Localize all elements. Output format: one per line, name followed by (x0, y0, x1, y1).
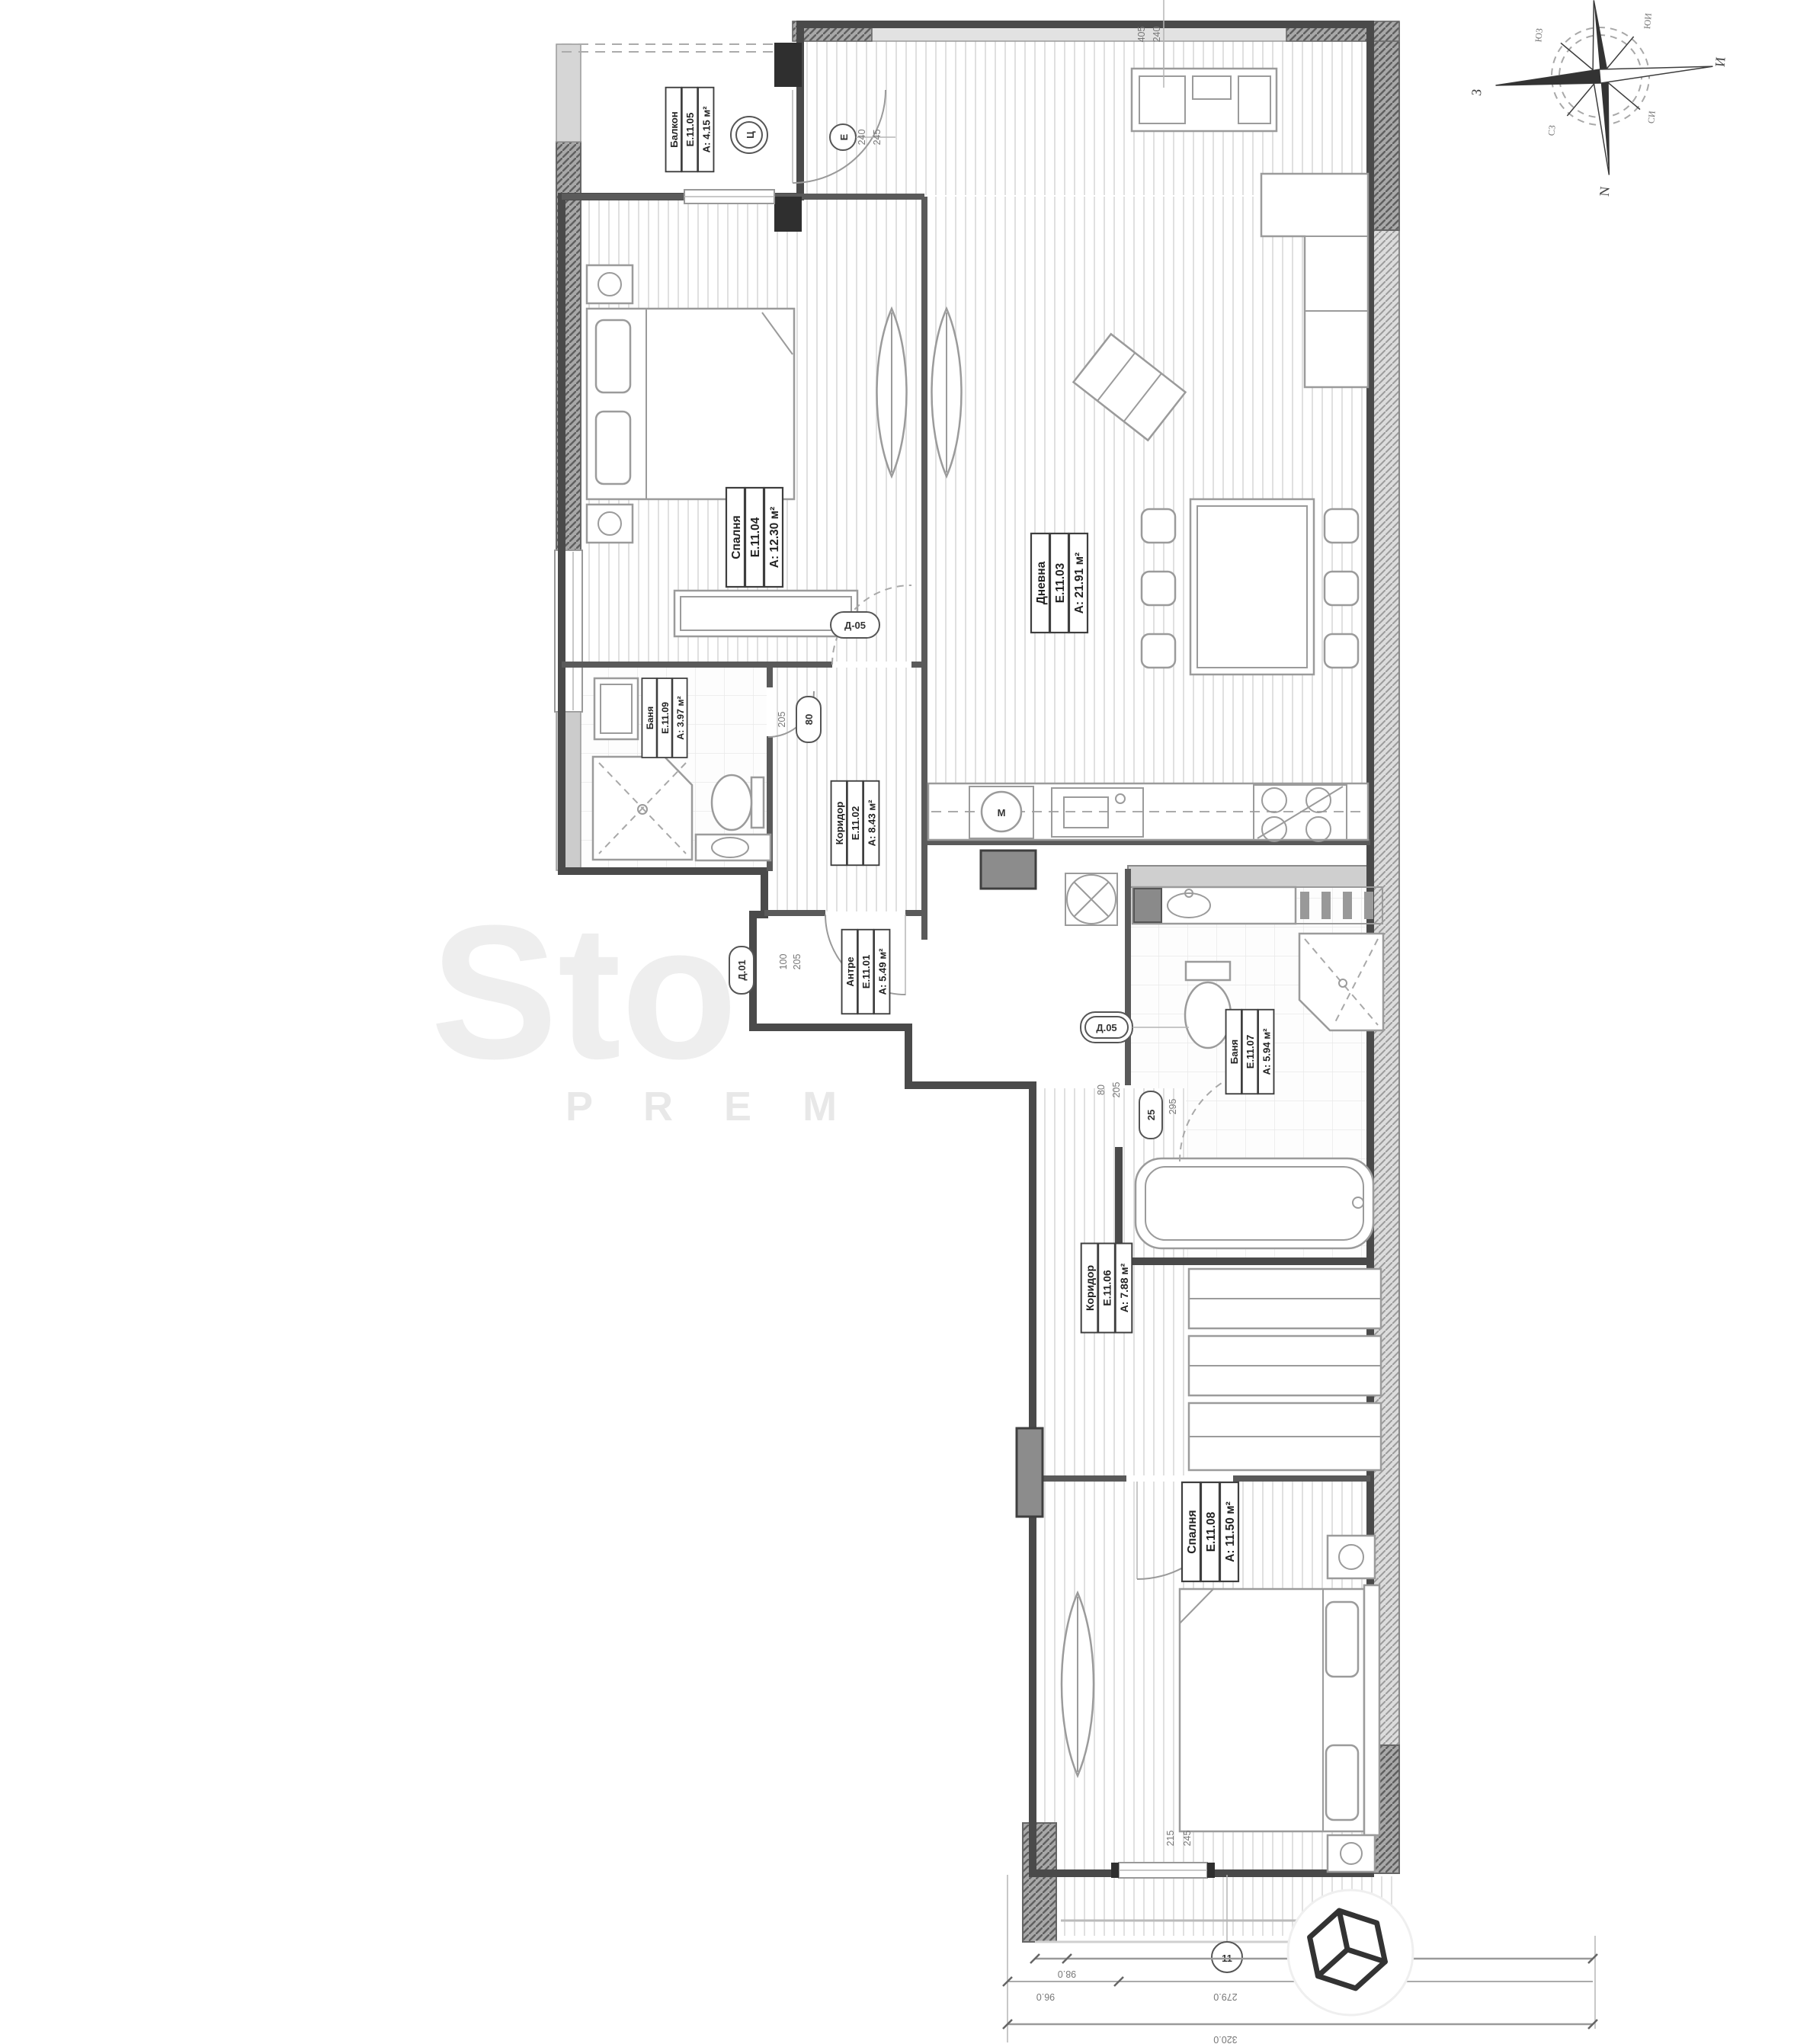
label-balcony-name: Балкон (668, 111, 680, 148)
french-door-jamb-l (1111, 1863, 1119, 1878)
dim-bath2-80: 80 (1096, 1084, 1107, 1095)
bottom-hatch-block (1023, 1823, 1056, 1942)
dim-bath2-205: 205 (1111, 1082, 1122, 1098)
bathtub (1136, 1158, 1373, 1248)
label-corridor2-area: А: 7.88 м² (1118, 1263, 1130, 1312)
dim-bd2-215: 215 (1165, 1831, 1176, 1847)
label-bath2: Баня Е.11.07 А: 5.94 м² (1226, 1010, 1274, 1094)
shaft-kitchen (981, 851, 1036, 889)
dim-entry-100: 100 (778, 954, 789, 970)
marker-small-door2-label: 25 (1145, 1110, 1157, 1120)
dim-bot-98: 98.0 (1058, 1969, 1076, 1979)
compass-needle-ew-fill (1495, 69, 1601, 92)
label-bedroom1-name: Спалня (730, 515, 743, 559)
chair-l2 (1142, 572, 1175, 605)
compass-rose: З И N ЮЗ ЮИ СЗ СИ (1461, 0, 1739, 209)
label-balcony-area: А: 4.15 м² (700, 106, 712, 153)
compass-west-label: З (1469, 88, 1485, 97)
floor-plan-drawing: Sto P R E M (0, 0, 1810, 2044)
label-corridor1-code: Е.11.02 (850, 806, 861, 841)
washing-machine-label: М (998, 807, 1006, 819)
french-door-jamb-r (1207, 1863, 1215, 1878)
bed1-pillow-1 (596, 320, 630, 392)
chair-r2 (1325, 572, 1358, 605)
compass-north-label: N (1597, 186, 1613, 197)
watermark: Sto P R E M (431, 886, 857, 1129)
label-bedroom2-code: Е.11.08 (1205, 1511, 1218, 1552)
dim-bot-320: 320.0 (1213, 2034, 1237, 2044)
dim-bot-96: 96.0 (1036, 1991, 1055, 2002)
label-living: Дневна Е.11.03 А: 21.91 м² (1031, 533, 1088, 633)
chair-l1 (1142, 509, 1175, 543)
toilet2-tank (1186, 962, 1230, 980)
marker-d05-hall2-label: Д.05 (1096, 1022, 1116, 1033)
nightstand1-bottom (587, 505, 633, 543)
dining-table (1190, 499, 1314, 674)
marker-circle2-label: Е (838, 133, 850, 140)
label-bath2-area: А: 5.94 м² (1261, 1028, 1272, 1075)
label-corridor1: Коридор Е.11.02 А: 8.43 м² (831, 781, 879, 866)
dim-bot-279: 279.0 (1213, 1991, 1237, 2002)
label-bedroom1-area: А: 12.30 м² (768, 507, 781, 568)
right-wall-dark-top (1372, 23, 1399, 230)
shelf-bar-3 (1343, 892, 1352, 919)
compass-east-label: И (1712, 56, 1728, 68)
watermark-big-text: Sto (431, 886, 738, 1098)
nightstand2-bottom (1328, 1835, 1375, 1872)
toilet2-bowl (1185, 982, 1231, 1048)
dim-bath2-295: 295 (1168, 1099, 1178, 1115)
label-bedroom2: Спалня Е.11.08 А: 11.50 м² (1182, 1482, 1238, 1581)
label-bedroom1: Спалня Е.11.04 А: 12.30 м² (726, 488, 783, 587)
bed2-pillow-1 (1326, 1602, 1358, 1677)
label-balcony: Балкон Е.11.05 А: 4.15 м² (666, 88, 714, 172)
nightstand2-top (1328, 1536, 1375, 1578)
label-bath1-code: Е.11.09 (660, 702, 671, 734)
watermark-small-text: P R E M (565, 1084, 857, 1129)
label-bedroom2-area: А: 11.50 м² (1224, 1501, 1237, 1562)
shelf-bar-1 (1300, 892, 1309, 919)
label-antre: Антре Е.11.01 А: 5.49 м² (842, 930, 890, 1014)
dim-entry-205: 205 (792, 954, 802, 970)
label-antre-name: Антре (844, 956, 856, 986)
marker-circle1-label: Ц (745, 131, 756, 139)
label-antre-area: А: 5.49 м² (876, 948, 888, 995)
bed1-pillow-2 (596, 412, 630, 484)
bed2-headboard (1364, 1585, 1379, 1835)
dim-top-405: 405 (1136, 27, 1147, 43)
label-bath2-code: Е.11.07 (1245, 1035, 1256, 1069)
marker-d05-corridor-label: Д-05 (844, 620, 866, 631)
label-balcony-code: Е.11.05 (684, 113, 696, 147)
marker-bath1-door-label: 80 (803, 714, 815, 725)
label-corridor1-name: Коридор (834, 802, 845, 845)
dim-balcony-240: 240 (857, 130, 867, 146)
chair-r3 (1325, 634, 1358, 668)
chair-r1 (1325, 509, 1358, 543)
compass-nw-label: СЗ (1546, 125, 1557, 136)
label-corridor1-area: А: 8.43 м² (866, 799, 877, 847)
compass-sw-label: ЮЗ (1533, 27, 1545, 43)
shaft-corridor2 (1017, 1428, 1043, 1517)
label-corridor2: Коридор Е.11.06 А: 7.88 м² (1081, 1244, 1132, 1333)
label-living-area: А: 21.91 м² (1073, 553, 1086, 614)
label-bedroom2-name: Спалня (1186, 1510, 1199, 1553)
label-bedroom1-code: Е.11.04 (749, 517, 762, 557)
label-bath1-area: А: 3.97 м² (675, 696, 686, 739)
shelf-bar-4 (1364, 892, 1373, 919)
door-jamb-balcony-bottom (774, 197, 802, 232)
door-jamb-balcony-top (774, 43, 802, 87)
label-bath2-name: Баня (1229, 1040, 1240, 1064)
dim-balcony-245: 245 (872, 130, 883, 146)
label-corridor2-code: Е.11.06 (1100, 1270, 1113, 1306)
dim-bath1-205: 205 (777, 712, 787, 728)
cube-badge[interactable] (1288, 1890, 1413, 2015)
chair-l3 (1142, 634, 1175, 668)
dim-top-240: 240 (1152, 27, 1162, 43)
balcony-left-wall (556, 44, 581, 142)
label-bath1-name: Баня (645, 706, 655, 730)
compass-se-label: ЮИ (1642, 12, 1654, 29)
label-corridor2-name: Коридор (1084, 1265, 1096, 1311)
label-bath1: Баня Е.11.09 А: 3.97 м² (642, 678, 687, 758)
floor-living-top (803, 26, 1369, 195)
label-antre-code: Е.11.01 (860, 955, 872, 989)
compass-ne-label: СИ (1645, 110, 1657, 123)
nightstand1-top (587, 265, 633, 303)
shelf-bar-2 (1321, 892, 1331, 919)
floor-plan-page: Sto P R E M (0, 0, 1810, 2044)
dim-bd2-245: 245 (1182, 1831, 1193, 1847)
bath2-cabinet (1134, 889, 1161, 922)
label-living-name: Дневна (1035, 561, 1048, 604)
marker-entry-door-label: Д.01 (736, 960, 748, 980)
unit-divider-band (1128, 866, 1372, 887)
label-living-code: Е.11.03 (1054, 562, 1067, 603)
toilet1-bowl (712, 775, 751, 830)
toilet1-tank (751, 777, 764, 828)
bed2-pillow-2 (1326, 1745, 1358, 1820)
